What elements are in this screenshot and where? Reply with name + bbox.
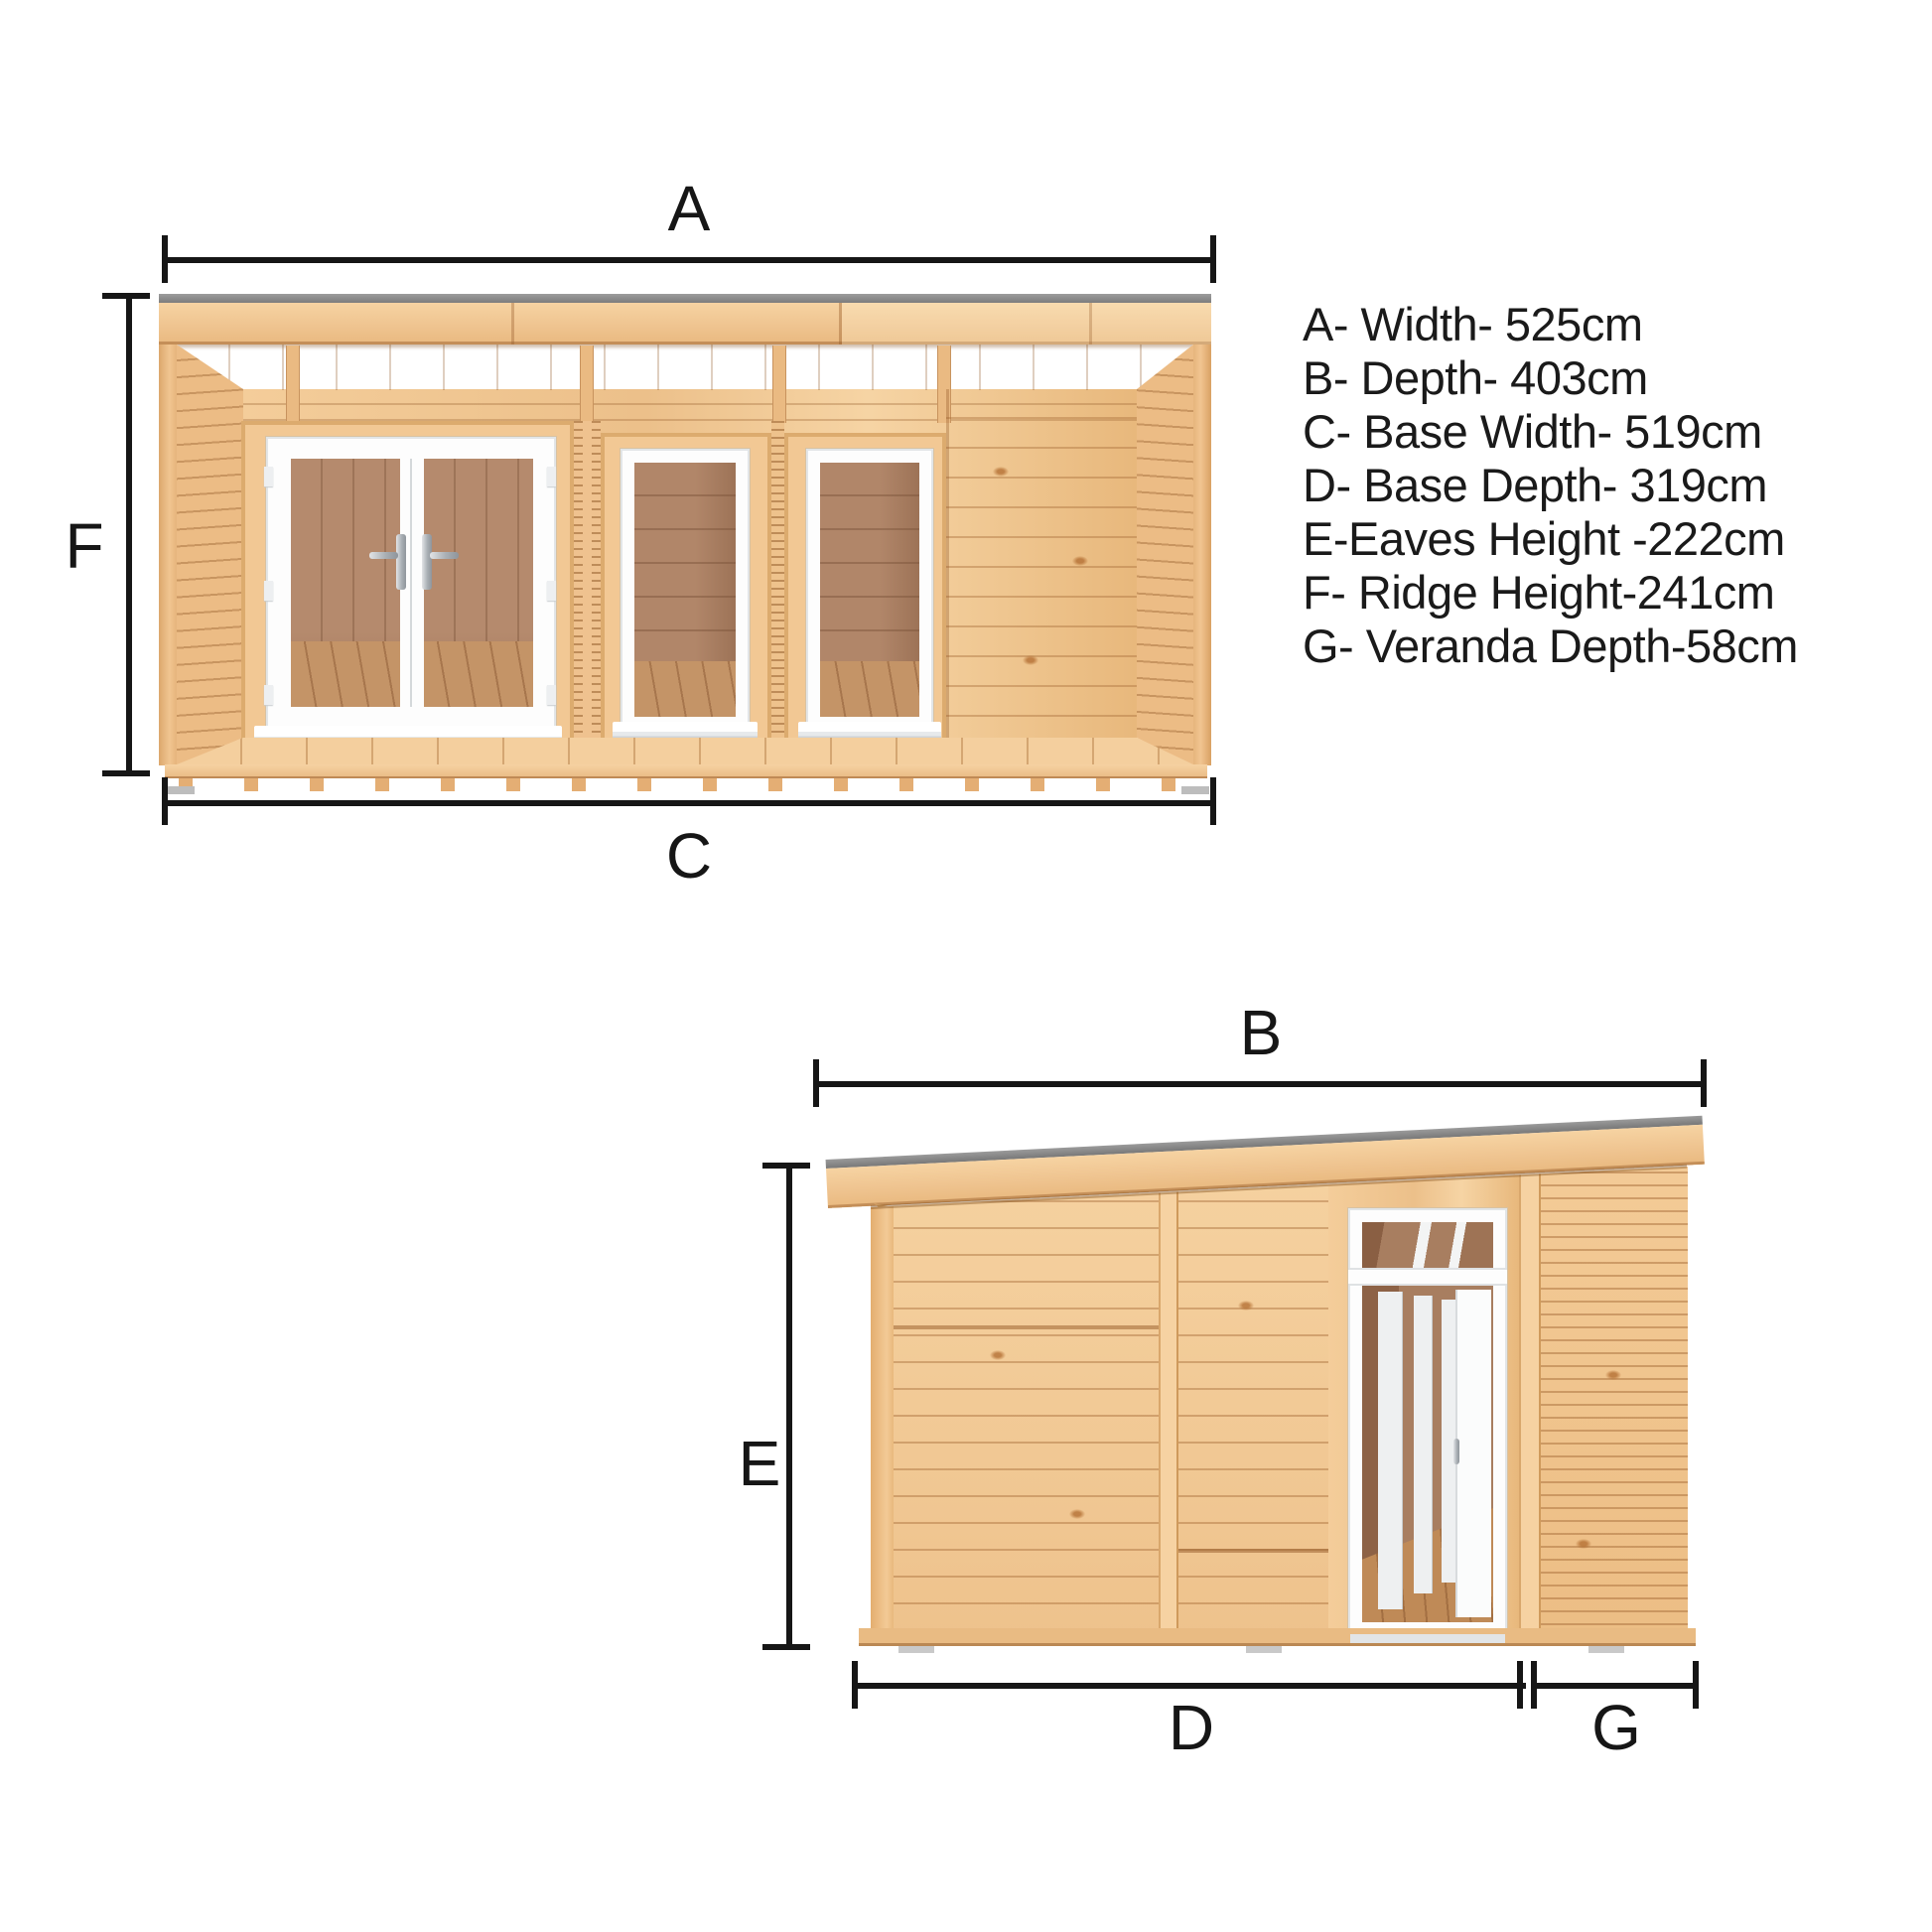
dim-line-base-width-C	[165, 800, 1213, 806]
legend-row-width: A- Width- 525cm	[1303, 298, 1918, 351]
door-hinge-top-left	[264, 467, 273, 486]
side-door-threshold	[1350, 1634, 1505, 1643]
wood-knot	[1238, 1301, 1254, 1311]
veranda-stud-3	[772, 345, 786, 423]
dim-tick-C-right	[1210, 777, 1216, 825]
side-veranda-panel	[1541, 1122, 1688, 1646]
french-door-glass-left	[291, 459, 400, 707]
wood-knot	[990, 1350, 1006, 1360]
side-trim-2	[1519, 1122, 1541, 1646]
interior-frame-strip-1	[1378, 1292, 1402, 1609]
interior-door-handle	[1453, 1439, 1459, 1464]
dimension-diagram: A F	[0, 0, 1932, 1932]
veranda-ceiling	[177, 345, 1193, 390]
side-trim-1	[1159, 1122, 1178, 1646]
french-door-meeting-stile	[410, 459, 412, 707]
dim-tick-D-left	[852, 1661, 858, 1709]
dim-label-veranda-G: G	[1557, 1696, 1676, 1759]
deck-front-edge	[165, 764, 1207, 778]
window-1-glass	[634, 463, 736, 717]
window-2-glass	[820, 463, 919, 717]
dim-label-width-A: A	[629, 177, 749, 240]
dim-label-base-depth-D: D	[1132, 1696, 1251, 1759]
dim-line-eaves-E	[786, 1166, 792, 1650]
wood-knot	[1023, 655, 1038, 665]
legend-row-base-width: C- Base Width- 519cm	[1303, 405, 1918, 459]
mullion-a-ladder-left	[574, 421, 583, 743]
dim-tick-D-right	[1517, 1661, 1523, 1709]
dim-label-eaves-E: E	[730, 1432, 789, 1495]
mullion-a-ladder-right	[592, 421, 601, 743]
dim-tick-E-top	[762, 1163, 810, 1169]
front-clad-wall-section	[946, 389, 1137, 740]
base-pad-1	[898, 1646, 934, 1653]
side-door-glass	[1362, 1286, 1493, 1622]
door-hinge-bottom-left	[264, 685, 273, 705]
door-handle-lever-left	[369, 552, 398, 559]
veranda-floor	[177, 738, 1193, 764]
legend-row-veranda-depth: G- Veranda Depth-58cm	[1303, 620, 1918, 673]
side-door-transom-glass	[1362, 1222, 1493, 1268]
panel-2-seam	[1178, 1549, 1328, 1553]
dim-tick-A-right	[1210, 235, 1216, 283]
wood-knot	[993, 467, 1009, 477]
front-corner-post-left	[159, 345, 177, 765]
wood-knot	[1072, 556, 1088, 566]
veranda-stud-2	[580, 345, 594, 423]
front-corner-post-right	[1193, 345, 1211, 765]
door-hinge-bottom-right	[547, 685, 556, 705]
french-door-glass-right	[424, 459, 533, 707]
dim-tick-B-right	[1701, 1059, 1707, 1107]
base-pad-3	[1588, 1646, 1624, 1653]
fascia-joint-3	[1089, 303, 1092, 345]
dim-tick-G-right	[1693, 1661, 1699, 1709]
dim-line-width-A	[165, 257, 1213, 263]
legend-row-base-depth: D- Base Depth- 319cm	[1303, 459, 1918, 512]
side-door-white-frame	[1348, 1208, 1507, 1636]
door-hinge-top-right	[547, 467, 556, 486]
window-2-sill	[798, 722, 941, 740]
dim-label-ridge-F: F	[55, 514, 114, 578]
front-roof-felt	[159, 294, 1211, 303]
mullion-b	[771, 421, 784, 743]
side-clad-panel-2	[1178, 1122, 1328, 1646]
wood-knot	[1605, 1370, 1621, 1380]
legend-row-ridge-height: F- Ridge Height-241cm	[1303, 566, 1918, 620]
legend-row-depth: B- Depth- 403cm	[1303, 351, 1918, 405]
legend-row-eaves-height: E-Eaves Height -222cm	[1303, 512, 1918, 566]
door-handle-lever-right	[430, 552, 459, 559]
side-base-strip	[859, 1628, 1696, 1646]
veranda-side-wall-right	[1137, 345, 1193, 769]
veranda-side-wall-left	[177, 345, 243, 769]
door-handle-plate-left	[396, 534, 406, 590]
wood-knot	[1069, 1509, 1085, 1519]
interior-door-leaf	[1455, 1290, 1491, 1617]
door-hinge-mid-right	[547, 581, 556, 601]
dim-tick-E-bottom	[762, 1644, 810, 1650]
veranda-stud-1	[286, 345, 300, 423]
wood-knot	[1576, 1539, 1591, 1549]
dim-line-base-depth-D	[855, 1683, 1526, 1689]
fascia-joint-1	[511, 303, 514, 345]
door-hinge-mid-left	[264, 581, 273, 601]
panel-1-seam	[894, 1325, 1159, 1329]
dim-tick-F-top	[102, 293, 150, 299]
dim-tick-C-left	[162, 777, 168, 825]
dim-tick-A-left	[162, 235, 168, 283]
fascia-light-board	[842, 303, 1211, 345]
interior-frame-strip-2	[1414, 1296, 1432, 1593]
dim-tick-B-left	[813, 1059, 819, 1107]
dim-label-depth-B: B	[1201, 1001, 1320, 1064]
deck-pad-left	[167, 786, 195, 794]
dimension-legend: A- Width- 525cm B- Depth- 403cm C- Base …	[1303, 298, 1918, 673]
base-pad-2	[1246, 1646, 1282, 1653]
deck-pad-right	[1181, 786, 1209, 794]
side-door-transom-bar	[1348, 1268, 1507, 1286]
dim-line-veranda-G	[1537, 1683, 1696, 1689]
dim-label-base-width-C: C	[629, 824, 749, 888]
dim-line-depth-B	[816, 1081, 1706, 1087]
window-1-sill	[613, 722, 758, 740]
dim-tick-F-bottom	[102, 770, 150, 776]
deck-feet	[179, 778, 1207, 791]
dim-line-ridge-F	[126, 296, 132, 773]
door-handle-plate-right	[422, 534, 432, 590]
